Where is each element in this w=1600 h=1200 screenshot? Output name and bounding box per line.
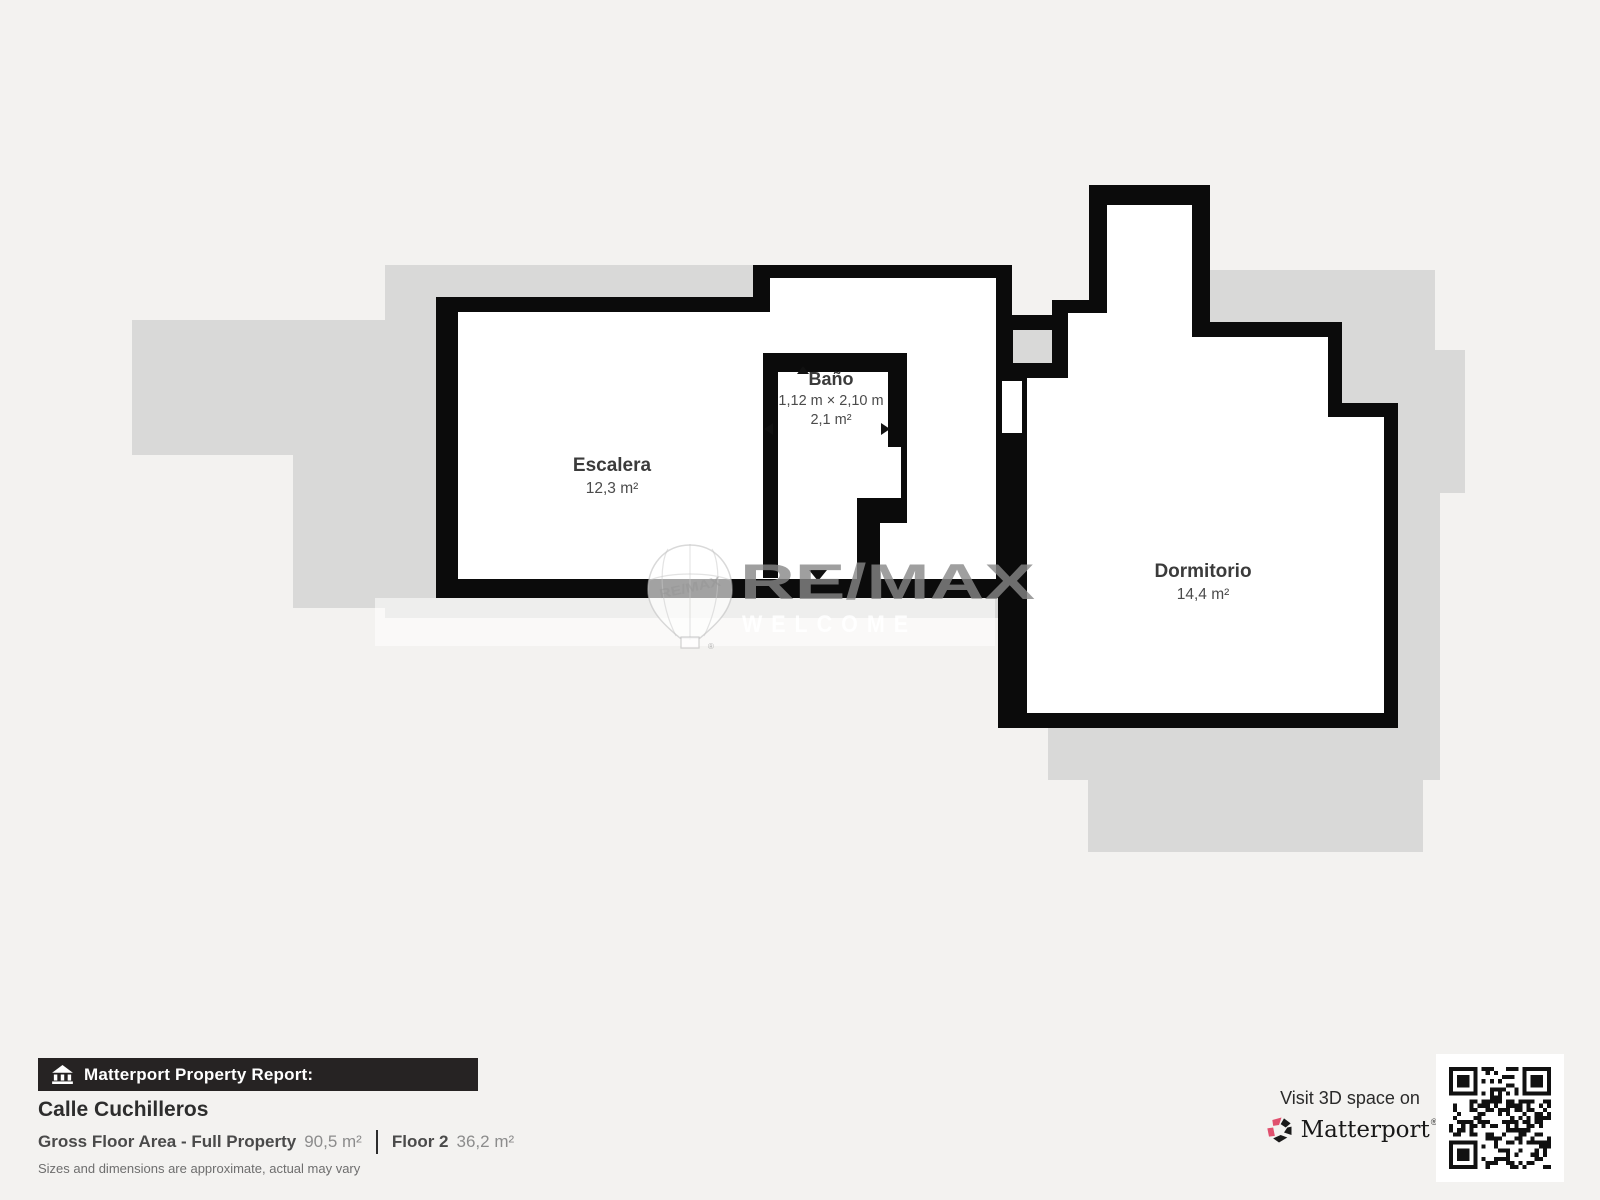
floor-label: Floor 2: [392, 1132, 449, 1152]
report-bar: Matterport Property Report:: [38, 1058, 478, 1091]
room-area-escalera: 12,3 m²: [586, 480, 639, 497]
floor-stats: Gross Floor Area - Full Property 90,5 m²…: [38, 1130, 514, 1154]
floorplan-canvas: Escalera 12,3 m² Baño 1,12 m × 2,10 m 2,…: [0, 0, 1600, 1200]
property-name: Calle Cuchilleros: [38, 1098, 208, 1122]
disclaimer-text: Sizes and dimensions are approximate, ac…: [38, 1161, 360, 1176]
gross-area-label: Gross Floor Area - Full Property: [38, 1132, 296, 1152]
underlay-notch: [1013, 330, 1052, 363]
matterport-floorplan-page: Escalera 12,3 m² Baño 1,12 m × 2,10 m 2,…: [0, 0, 1600, 1200]
report-bar-label: Matterport Property Report:: [84, 1065, 313, 1085]
room-label-dormitorio: Dormitorio: [1154, 561, 1251, 582]
matterport-logo-icon: [1264, 1115, 1294, 1145]
door-opening-dormitorio: [1002, 381, 1022, 433]
room-label-bano: Baño: [809, 369, 854, 389]
svg-text:®: ®: [708, 642, 714, 651]
visit-3d-block: Visit 3D space on Matterport ®: [1245, 1088, 1455, 1145]
stats-divider: [376, 1130, 378, 1154]
matterport-wordmark: Matterport: [1301, 1117, 1430, 1143]
room-label-escalera: Escalera: [573, 455, 652, 476]
floor-value: 36,2 m²: [457, 1132, 515, 1152]
house-icon: [52, 1065, 73, 1084]
watermark-sub-text: WELCOME: [742, 611, 917, 638]
room-area-dormitorio: 14,4 m²: [1177, 586, 1230, 603]
qr-code[interactable]: [1436, 1054, 1564, 1182]
room-dimensions-bano: 1,12 m × 2,10 m: [778, 393, 883, 409]
watermark-brand-text: RE/MAX: [740, 554, 1035, 610]
room-area-bano: 2,1 m²: [810, 412, 851, 428]
gross-area-value: 90,5 m²: [304, 1132, 362, 1152]
visit-3d-label: Visit 3D space on: [1245, 1088, 1455, 1109]
